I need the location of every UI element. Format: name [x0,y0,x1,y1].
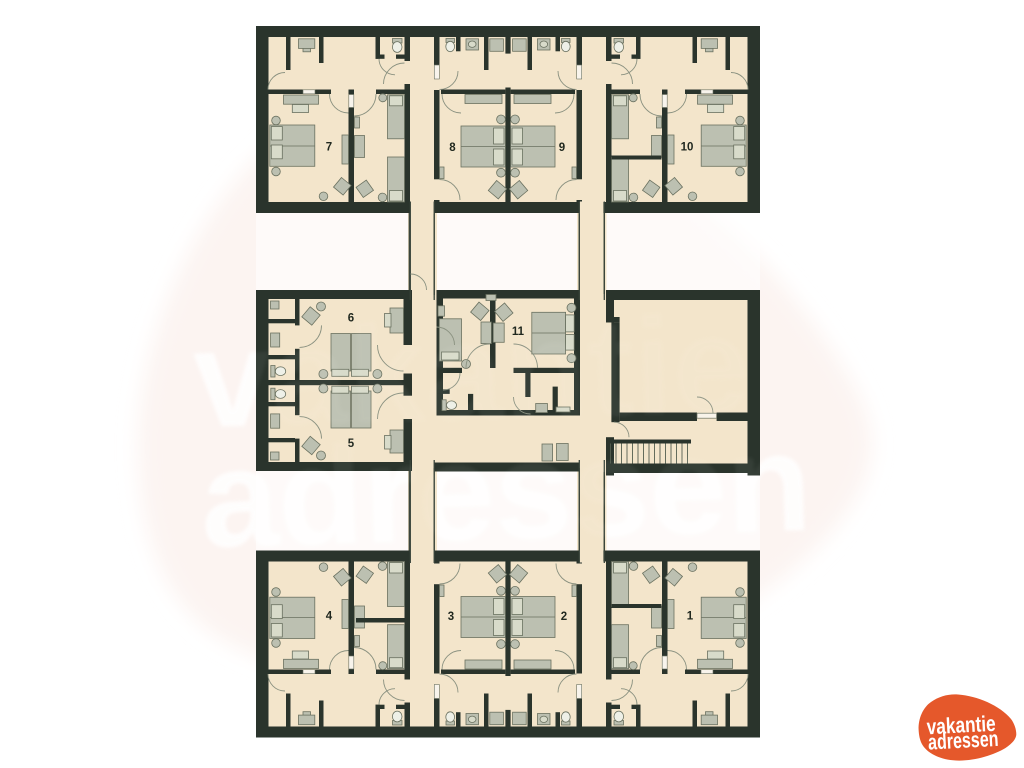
svg-text:8: 8 [449,142,456,154]
svg-text:9: 9 [559,142,565,154]
svg-text:adressen: adressen [199,405,814,577]
svg-text:1: 1 [687,611,694,623]
svg-text:adressen: adressen [927,726,999,755]
svg-text:4: 4 [326,611,333,623]
svg-text:3: 3 [448,611,454,623]
svg-text:7: 7 [326,142,332,154]
svg-text:10: 10 [681,142,694,154]
svg-text:2: 2 [561,611,567,623]
